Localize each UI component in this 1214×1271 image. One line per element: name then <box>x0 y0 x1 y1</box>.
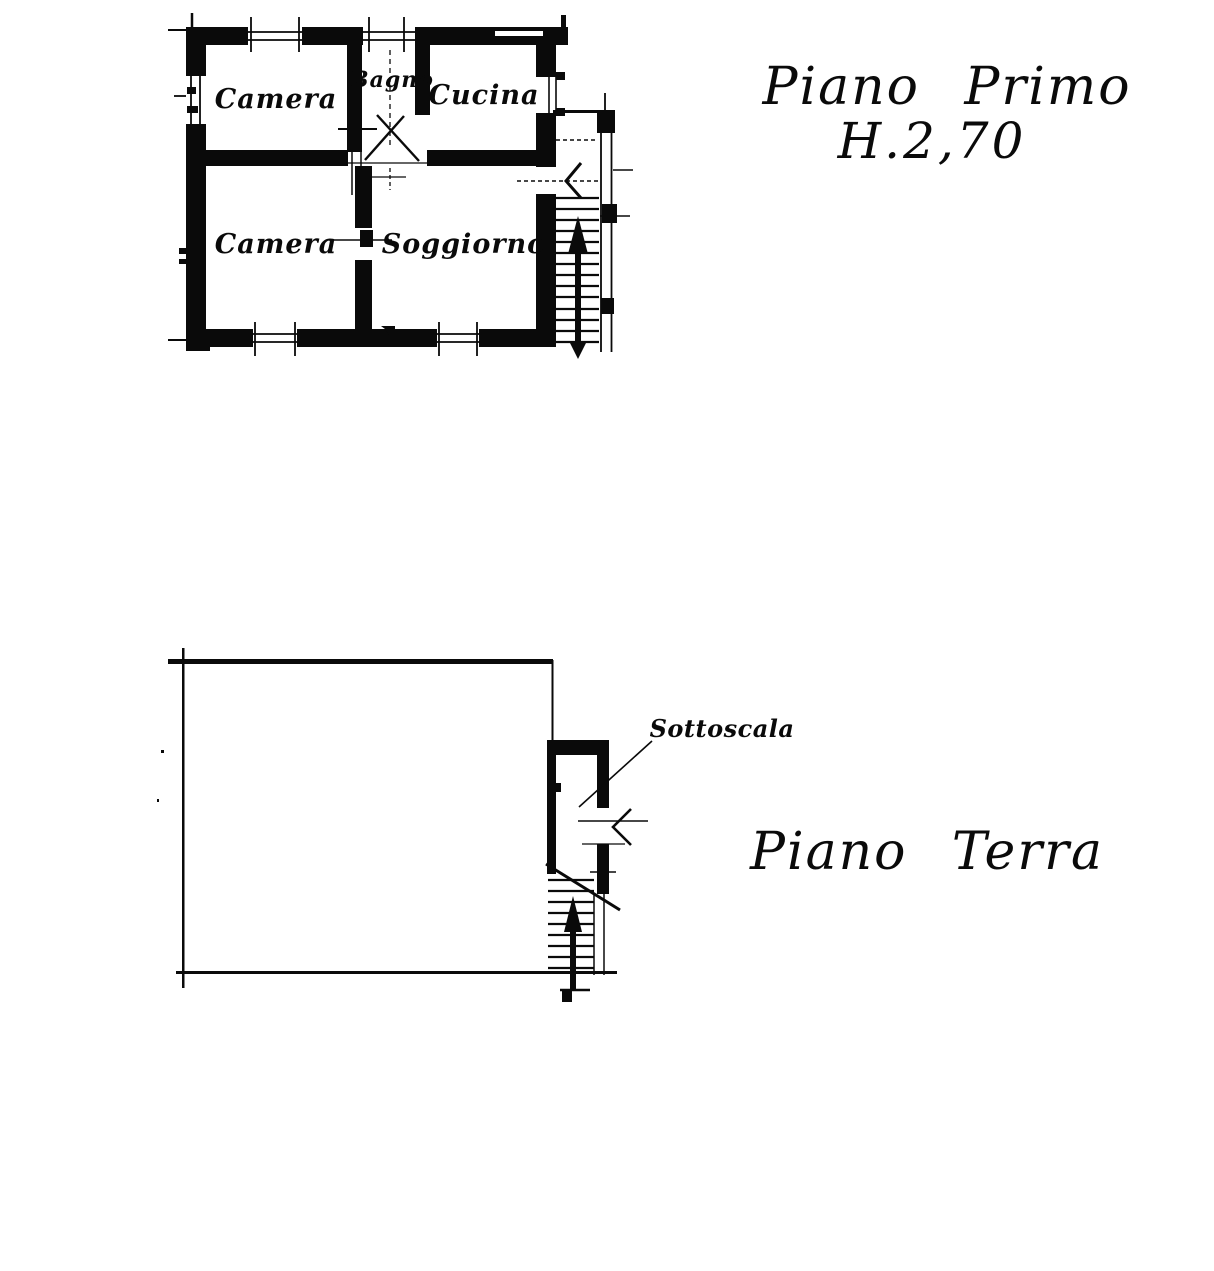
wall-mid-left <box>205 150 348 166</box>
room-label-camera-bottom: Camera <box>215 229 337 260</box>
door-landing <box>517 163 600 198</box>
ground-floor-plan: Sottoscala <box>157 648 794 1002</box>
sottoscala-door-swing <box>613 809 631 845</box>
scanned-floor-plan-page: Camera Bagno Cucina Camera Soggiorno Pia… <box>0 0 1214 1271</box>
wall-bottom <box>186 329 550 347</box>
sottoscala-label: Sottoscala <box>650 714 795 743</box>
room-label-bagno: Bagno <box>349 67 434 93</box>
stray-speck <box>157 799 159 802</box>
ground-floor-ticks <box>157 750 164 802</box>
wall-camera-soggiorno-nub <box>360 230 373 247</box>
outline-top <box>168 659 553 664</box>
stair-pier <box>597 110 615 133</box>
stair-pier <box>601 298 614 314</box>
ground-floor-title: Piano Terra <box>749 822 1104 882</box>
wall-left <box>186 27 206 347</box>
first-floor-plan: Camera Bagno Cucina Camera Soggiorno <box>168 13 633 359</box>
outline-left <box>182 648 185 988</box>
first-floor-caption: Piano Primo H.2,70 <box>761 57 1131 170</box>
sottoscala-closet <box>546 740 652 910</box>
room-label-camera-top: Camera <box>215 84 337 115</box>
wall-camera-soggiorno-upper <box>355 166 372 228</box>
stair-pier <box>602 204 617 223</box>
outline-bottom <box>176 971 617 974</box>
first-floor-staircase <box>553 93 633 359</box>
first-floor-title: Piano Primo <box>761 57 1131 117</box>
wall-camera-soggiorno-lower <box>355 260 372 329</box>
stair-direction-arrow <box>568 216 588 359</box>
room-label-soggiorno: Soggiorno <box>382 229 546 260</box>
sottoscala-wall-left <box>547 755 556 874</box>
room-label-cucina: Cucina <box>429 80 540 111</box>
ground-floor-staircase <box>548 880 604 1002</box>
stray-speck <box>161 750 164 753</box>
outline-right <box>552 660 554 742</box>
first-floor-height-note: H.2,70 <box>837 112 1027 170</box>
ground-floor-caption: Piano Terra <box>749 822 1104 882</box>
floor-plan-drawing: Camera Bagno Cucina Camera Soggiorno Pia… <box>0 0 1214 1271</box>
wall-mid-right <box>427 150 536 166</box>
wall-camera-bagno <box>347 45 362 152</box>
